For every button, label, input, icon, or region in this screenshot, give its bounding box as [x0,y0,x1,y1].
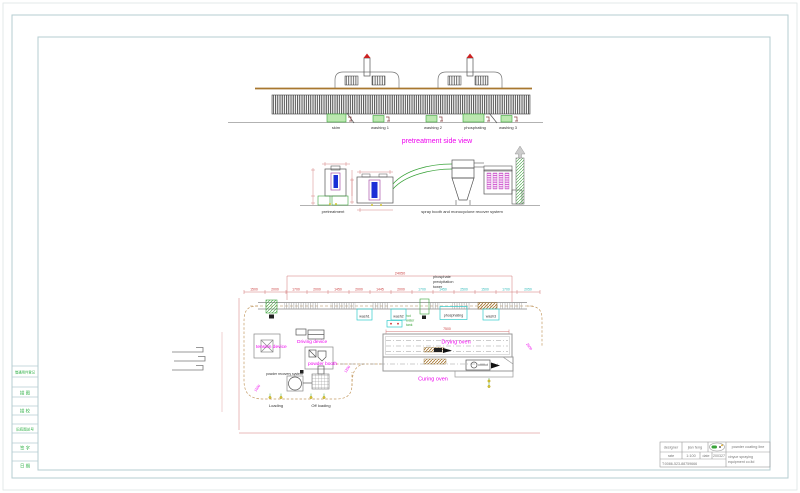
tension-device-label: tension device [256,344,287,350]
dim-number: 2000 [271,288,279,292]
date-label: date [703,454,710,458]
spray-booth-elevation: spray booth and monocyclone recover syst… [350,146,525,214]
air-flow-arrow [364,54,371,59]
loading-label: Loading [269,403,283,408]
side-view-tanks [327,114,512,122]
air-flow-arrow [467,54,474,59]
designer-label: designer [664,446,679,450]
workpiece-blue [372,182,378,198]
elevation-views: pretreatment [300,146,540,214]
tank-skim [327,114,346,122]
dim-number: 2000 [397,288,405,292]
strip-cell-label: 描 图 [20,390,31,397]
plan-view: 24050 7500 1500 2000 1700 2000 1450 2000… [172,272,542,434]
spray-booth-label: spray booth and monocyclone recover syst… [421,209,503,214]
cad-drawing: 借通用件登记 描 图 描 校 旧底图总号 签 字 日 期 [0,0,800,493]
off-loading-label: Off loading [311,403,330,408]
burner-glyph [434,348,442,352]
tank-label-washing-2: washing 2 [424,125,443,130]
dim-number: 2500 [460,288,468,292]
dim-number: 2000 [313,288,321,292]
driving-device-label: Driving device [297,339,327,345]
plan-tank-label: phosphating [444,314,464,318]
tank-label-washing-3: washing 3 [499,125,518,130]
motor-glyph [422,316,426,320]
hot-water-unit [420,299,429,314]
recovery-fan [287,376,312,391]
drying-oven-label: Drying oven [441,340,470,346]
curing-oven-label: Curing oven [418,377,448,383]
phone-number: T:0086-523-88759666 [662,462,697,466]
side-view-title: pretreatment side view [402,138,473,145]
exhaust-arrow [515,146,525,158]
cyclone-funnel [452,178,474,200]
rate-label: rate [668,454,675,458]
strip-cell-label: 描 校 [20,408,31,415]
dim-number: 1500 [250,288,258,292]
exhaust-fan-2 [438,54,502,89]
rotated-dim: 2500 [525,342,533,351]
exhaust-stack [516,158,524,204]
plan-tank-label: wash2 [393,315,403,319]
strip-cell-label: 借通用件登记 [15,370,36,375]
pretreatment-side-view: skim washing 1 washing 2 phosphating was… [228,54,543,146]
curing-burner [466,360,490,370]
dim-number: 1700 [418,288,426,292]
title-block: designer jian feng rate 1:100 date 20032… [660,442,770,467]
pretreatment-tunnel [272,95,530,114]
powder-duct [393,169,452,189]
drawing-sheet: 借通用件登记 描 图 描 校 旧底图总号 签 字 日 期 [0,0,800,493]
dim-number: 1700 [502,288,510,292]
tank-washing-2 [426,116,437,123]
strip-cell-label: 日 期 [20,464,31,470]
rotated-dim: 1200 [344,365,352,374]
tank-label-skim: skim [332,125,341,130]
note-line: tower [433,285,443,289]
powder-booth-label: powder booth [308,361,337,367]
strip-cell-label: 签 字 [20,445,31,451]
company-name-line2: equipment co.ltd [728,460,754,464]
pretreatment-elevation-label: pretreatment [322,209,346,214]
dim-number: 1445 [376,288,384,292]
rate-value: 1:100 [686,454,696,458]
date-value: 200327 [713,454,725,458]
plan-tank-label: wash1 [359,315,369,319]
note-line: hot [406,314,411,318]
plan-tanks [357,307,499,328]
strip-cell-label: 旧底图总号 [16,427,34,432]
product-name: powder coating line [732,445,765,449]
motor-glyph [269,315,274,319]
workpiece-blue [334,175,339,188]
burner-duct [424,359,446,364]
tank-label-washing-1: washing 1 [371,125,390,130]
dim-number: 2000 [355,288,363,292]
oven-dim: 7500 [443,327,451,331]
tank-phosphating [463,114,484,122]
driving-device [296,329,324,339]
rotated-dim: 1500 [254,384,262,393]
tank-washing-1 [373,116,384,123]
dim-number: 1450 [334,288,342,292]
dim-total: 24050 [395,272,406,276]
bridge-platform [478,303,497,310]
dim-number: 1500 [481,288,489,292]
dim-number: 2050 [524,288,532,292]
conveyor-drive-station [266,300,277,313]
note-line: water [406,319,415,323]
burner-arrow [491,363,500,369]
oven-hanger [488,378,490,388]
sheet-borders [3,3,797,490]
note-line: phosphate [433,275,451,279]
tank-washing-3 [501,116,512,123]
flow-arrows [172,348,205,371]
designer-name: jian feng [687,446,702,450]
outer-border [12,15,788,478]
company-logo [710,443,725,451]
powder-booth [300,347,333,374]
burner-arrow [443,348,452,353]
recovery-filter [312,374,329,389]
note-line: precipitation [433,280,453,284]
drying-oven [383,334,512,357]
hot-water-note: hot water tank [406,314,415,327]
dim-number: 1700 [292,288,300,292]
pretreatment-elevation: pretreatment [311,162,352,214]
exhaust-fan-1 [335,54,399,89]
powder-duct [393,164,452,184]
load-hangers [269,394,325,399]
tank-label-phosphating: phosphating [464,125,486,130]
plan-tank-label: wash3 [486,315,496,319]
company-name-line1: xinyue spraying [728,455,753,459]
left-title-strip-labels: 借通用件登记 描 图 描 校 旧底图总号 签 字 日 期 [15,370,36,470]
powder-recovery-label: powder recovery system [266,372,303,376]
note-line: tank [406,323,413,327]
